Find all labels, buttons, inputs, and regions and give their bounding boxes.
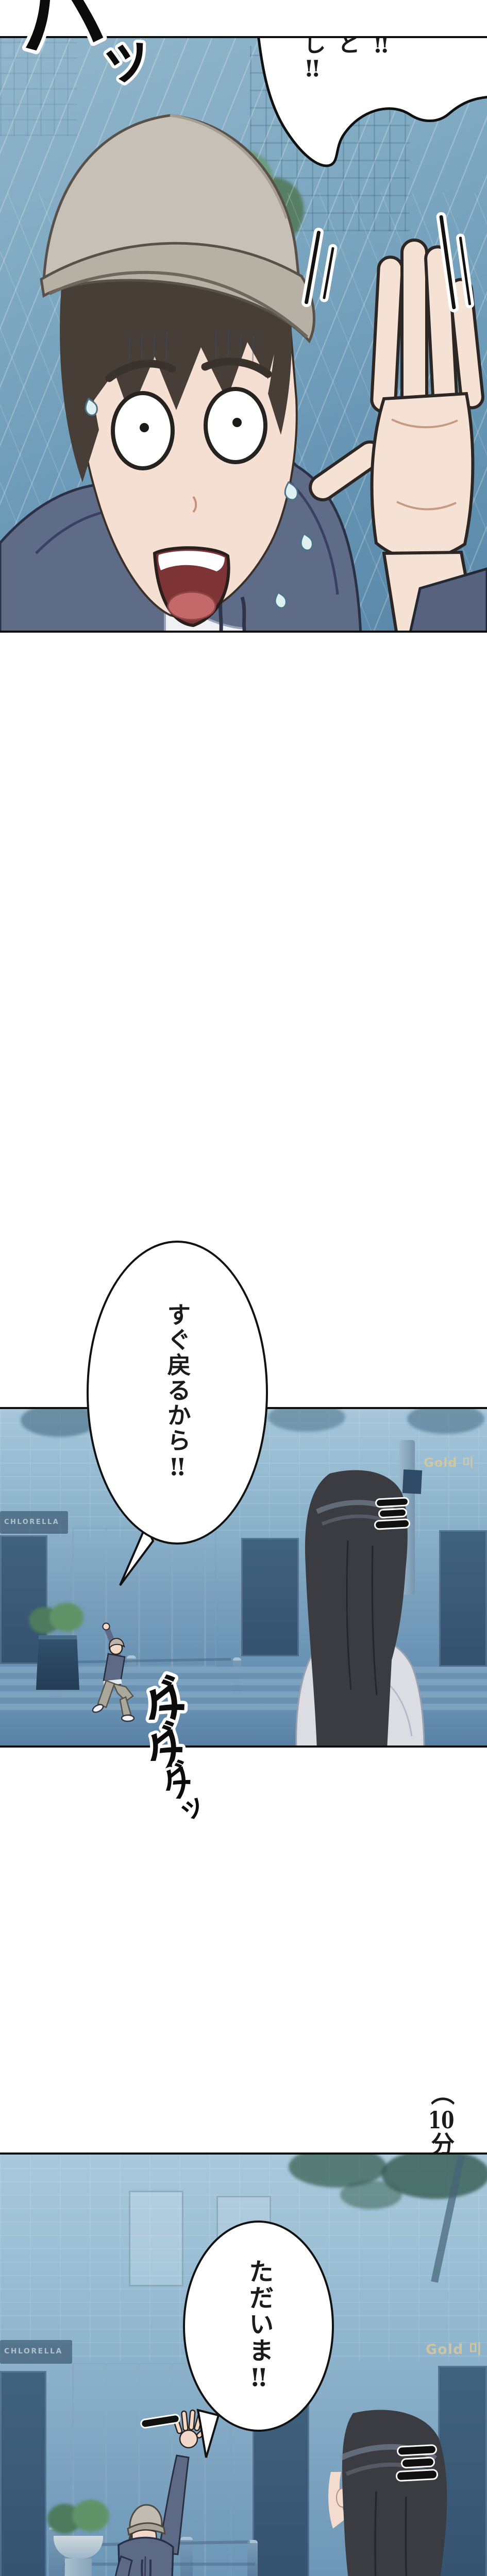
panel-1: ‼ と し‼ (0, 36, 487, 633)
girl-back-figure (304, 2409, 487, 2576)
emphasis-mark-bars (396, 2469, 439, 2482)
sign-gold: Gold 미 (426, 2338, 482, 2358)
girl-back-figure (286, 1468, 435, 1748)
emphasis-mark-bars (401, 2456, 435, 2468)
emphasis-mark-bars (397, 2444, 438, 2456)
wall-window (129, 2191, 183, 2286)
tree-branch (340, 2180, 402, 2209)
bollard (247, 2540, 258, 2576)
bubble-imhome-text: ただいま‼ (244, 2259, 274, 2394)
storefront-glass (0, 2371, 46, 2576)
sfx-burst: バ ッ (0, 0, 180, 108)
storefront-glass (439, 1530, 487, 1667)
bubble-cutoff-text: ‼ と し‼ (291, 36, 394, 114)
bubble-return-text: すぐ戻るから‼ (163, 1302, 191, 1482)
emphasis-mark-bars (374, 1518, 411, 1530)
planter-pedestal (65, 2558, 92, 2576)
manga-page: ‼ と し‼ バ ッ Gold 미 CHLORELLA (0, 0, 487, 2576)
sign-chlorella: CHLORELLA (4, 2347, 63, 2355)
sfx-running: ダ ダ ダ ッ (103, 1664, 237, 1834)
emphasis-mark-bars (378, 1508, 408, 1519)
emphasis-mark-bars (375, 1497, 410, 1507)
svg-text:ッ: ッ (92, 21, 160, 95)
speech-bubble-return: すぐ戻るから‼ (87, 1241, 268, 1545)
speech-bubble-imhome: ただいま‼ (183, 2221, 334, 2432)
sign-gold: Gold 미 (424, 1452, 474, 1470)
sign-chlorella: CHLORELLA (4, 1518, 59, 1526)
